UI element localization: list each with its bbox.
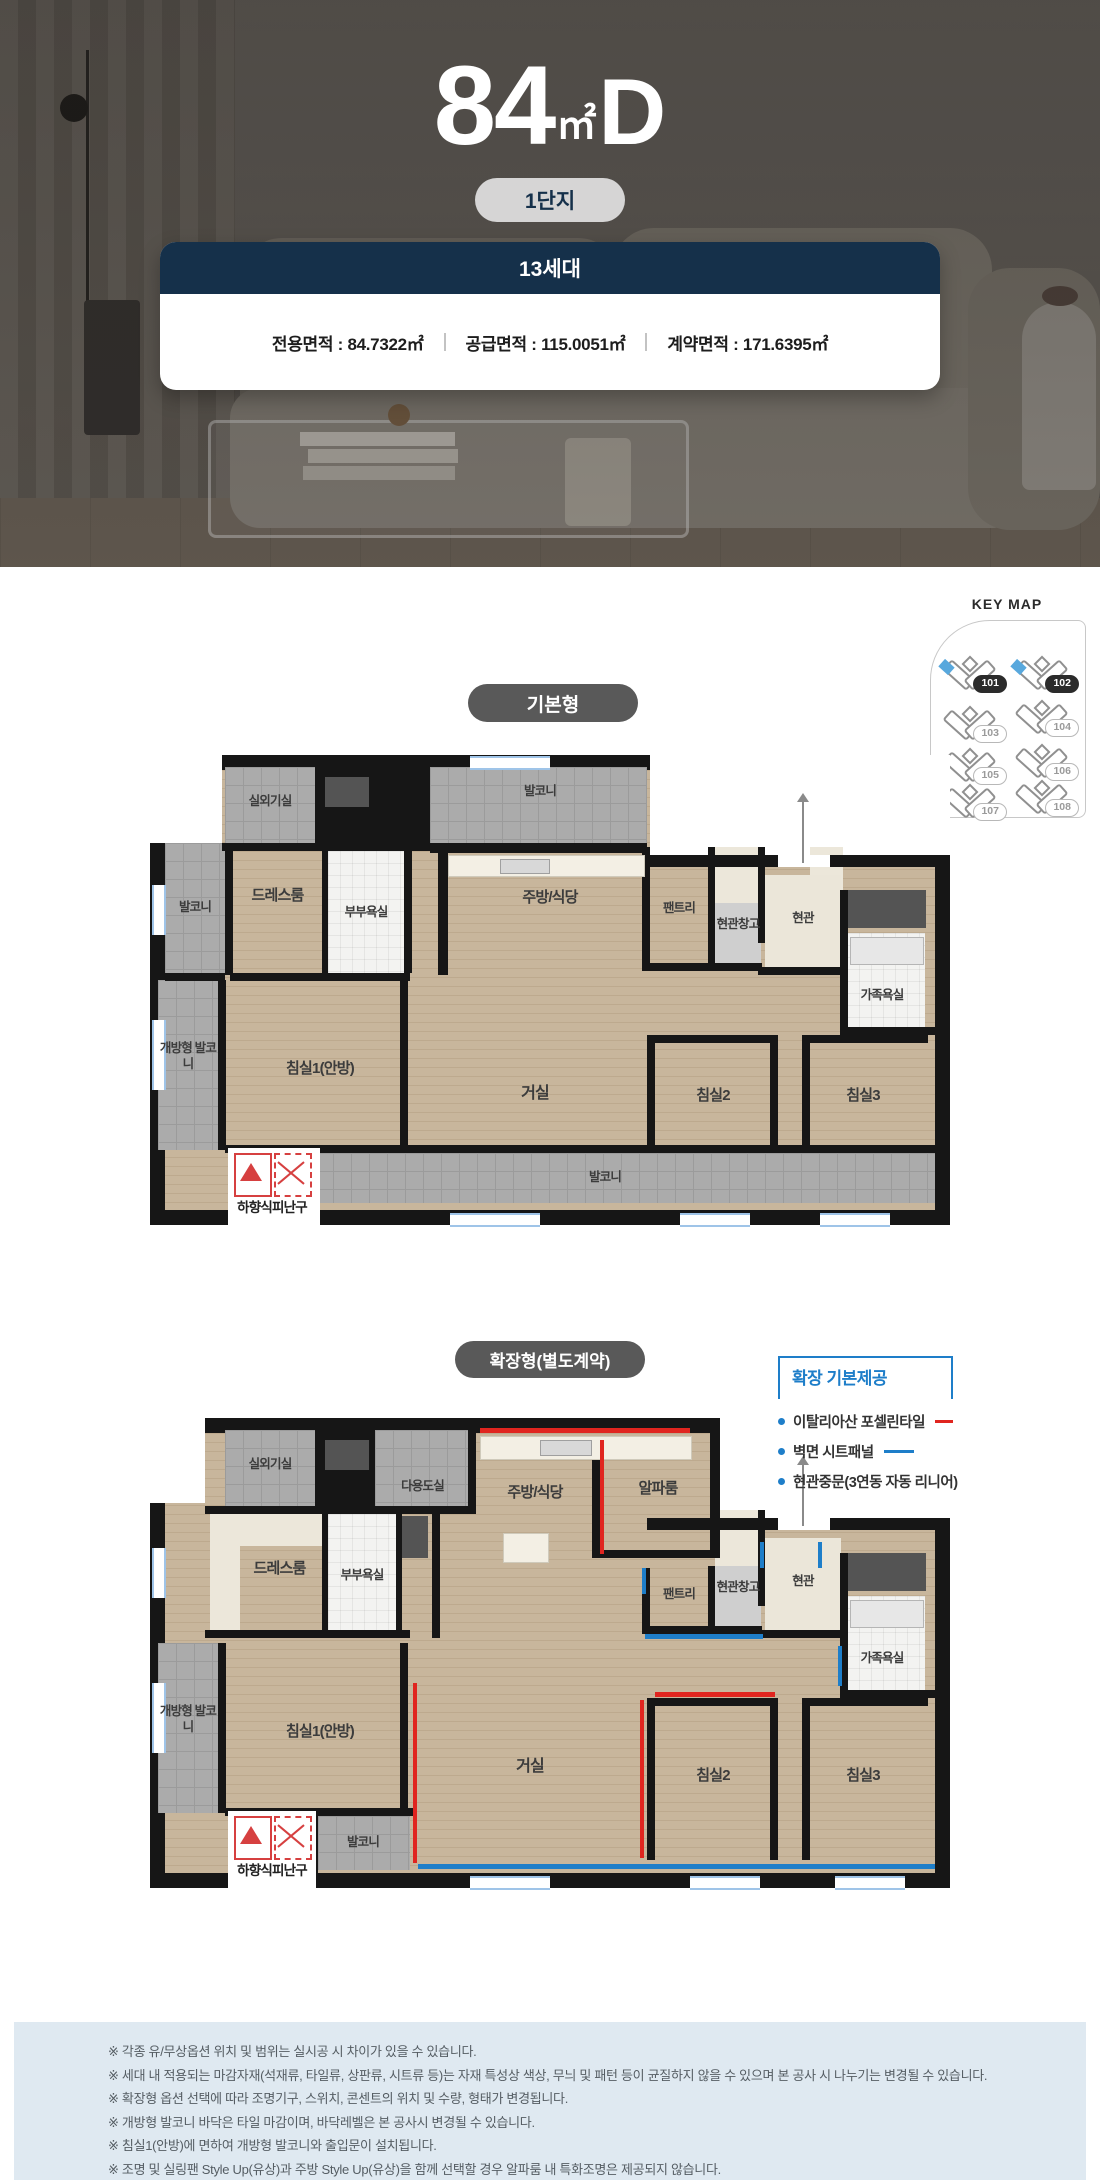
room-label: 주방/식당 <box>495 885 605 911</box>
extension-line-blue <box>418 1864 935 1869</box>
extension-line-blue <box>838 1646 842 1686</box>
duct <box>402 1516 428 1558</box>
extension-line-blue <box>645 1634 763 1639</box>
room-label: 가족욕실 <box>854 977 910 1015</box>
escape-hatch-icon <box>274 1153 312 1197</box>
wall <box>647 1698 655 1860</box>
wall <box>758 1630 842 1638</box>
wall <box>322 851 328 973</box>
wall <box>647 1035 778 1043</box>
room-label: 거실 <box>485 1753 575 1781</box>
complex-badge: 1단지 <box>475 178 625 222</box>
extension-line-red <box>413 1683 417 1863</box>
wall <box>396 1514 402 1632</box>
room-label: 발코니 <box>165 897 225 919</box>
wall <box>642 1626 762 1634</box>
window-marker <box>470 1876 550 1890</box>
keymap: 101 102 103 104 105 106 107 108 <box>930 620 1086 818</box>
room-label: 침실3 <box>818 1083 908 1109</box>
extension-line-red <box>640 1700 644 1858</box>
blue-line-swatch <box>884 1450 914 1453</box>
legend-title: 확장 기본제공 <box>778 1356 953 1399</box>
duct <box>848 890 926 928</box>
keymap-building-103: 103 <box>943 705 995 741</box>
legend-item-label: 이탈리아산 포셀린타일 <box>793 1411 925 1432</box>
note-line: ※ 조명 및 실링팬 Style Up(유상)과 주방 Style Up(유상)… <box>108 2158 1086 2180</box>
keymap-building-107: 107 <box>943 783 995 819</box>
wall <box>400 980 408 1150</box>
room-label: 발코니 <box>570 1167 640 1189</box>
building-number: 103 <box>973 725 1007 743</box>
notes-section: ※ 각종 유/무상옵션 위치 및 범위는 실시공 시 차이가 있을 수 있습니다… <box>14 2022 1086 2180</box>
divider <box>645 333 647 351</box>
exterior-cutout <box>650 755 950 855</box>
entry-arrow <box>802 801 804 863</box>
keymap-building-106: 106 <box>1015 743 1067 779</box>
window-marker <box>470 756 550 770</box>
building-number: 104 <box>1045 719 1079 737</box>
room-label: 주방/식당 <box>480 1480 590 1506</box>
households-header: 13세대 <box>160 242 940 294</box>
building-number: 102 <box>1045 675 1079 693</box>
extension-line-red <box>600 1440 604 1554</box>
escape-hatch-icon <box>274 1816 312 1860</box>
unit-type-sqm: ㎡ <box>556 103 596 147</box>
duct <box>325 777 369 807</box>
room-label: 부부욕실 <box>332 1558 392 1594</box>
extension-line-blue <box>818 1542 822 1568</box>
wall <box>430 843 647 853</box>
keymap-building-105: 105 <box>943 747 995 783</box>
window-marker <box>152 885 166 935</box>
area-exclusive: 전용면적 : 84.7322㎡ <box>272 330 424 355</box>
wall <box>802 1035 810 1147</box>
room-label: 침실1(안방) <box>250 1718 390 1746</box>
escape-hatch-icon <box>234 1816 272 1860</box>
wall <box>758 967 842 975</box>
plan-basic-badge: 기본형 <box>468 684 638 722</box>
wall <box>230 973 410 981</box>
plan-extended-badge: 확장형(별도계약) <box>455 1341 645 1378</box>
wall <box>802 1698 810 1860</box>
bullet-icon <box>778 1418 785 1425</box>
room-label: 현관창고 <box>716 905 760 945</box>
room-label: 개방형 발코니 <box>156 1035 220 1079</box>
wall <box>205 1630 410 1638</box>
exterior-cutout <box>150 755 222 843</box>
room-label: 팬트리 <box>650 1583 708 1607</box>
building-number: 107 <box>973 803 1007 821</box>
room-label: 현관 <box>775 1570 831 1594</box>
wall <box>222 843 442 851</box>
bathtub <box>850 1600 924 1628</box>
entry-arrow-head <box>797 793 809 802</box>
unit-type-letter: D <box>598 59 666 164</box>
keymap-building-108: 108 <box>1015 779 1067 815</box>
exterior-cutout <box>150 1418 205 1503</box>
room-label: 실외기실 <box>225 1454 315 1476</box>
kitchen-island <box>503 1533 549 1563</box>
kitchen-sink <box>500 859 550 874</box>
kitchen-sink <box>540 1440 592 1456</box>
window-marker <box>680 1213 750 1227</box>
area-supply: 공급면적 : 115.0051㎡ <box>466 330 626 355</box>
window-marker <box>450 1213 540 1227</box>
note-line: ※ 개방형 발코니 바닥은 타일 마감이며, 바닥레벨은 본 공사시 변경될 수… <box>108 2111 1086 2135</box>
escape-triangle <box>240 1826 262 1844</box>
room-label: 발코니 <box>328 1832 398 1854</box>
legend-item-label: 벽면 시트패널 <box>793 1441 874 1462</box>
room-label: 하향식피난구 <box>212 1859 332 1883</box>
bathtub <box>850 937 924 965</box>
divider <box>444 333 446 351</box>
wall <box>802 1035 928 1043</box>
duct <box>325 1440 369 1470</box>
room-label: 실외기실 <box>225 791 315 813</box>
extension-line-red <box>655 1692 775 1697</box>
window-marker <box>835 1876 905 1890</box>
room-label: 침실2 <box>668 1083 758 1109</box>
wall <box>404 851 412 973</box>
room-label: 현관창고 <box>716 1568 760 1608</box>
wall <box>225 1145 935 1153</box>
unit-info-card: 13세대 전용면적 : 84.7322㎡ 공급면적 : 115.0051㎡ 계약… <box>160 242 940 390</box>
keymap-title: KEY MAP <box>930 596 1084 612</box>
room-label: 부부욕실 <box>336 895 396 931</box>
note-line: ※ 확장형 옵션 선택에 따라 조명기구, 스위치, 콘센트의 위치 및 수량,… <box>108 2087 1086 2111</box>
room-label: 개방형 발코니 <box>156 1698 220 1742</box>
wall <box>710 1430 720 1558</box>
wall <box>647 1698 778 1706</box>
room-label: 팬트리 <box>650 897 708 921</box>
room-label: 하향식피난구 <box>212 1196 332 1220</box>
room-balcony-top <box>430 767 647 845</box>
note-line: ※ 세대 내 적용되는 마감자재(석재류, 타일류, 상판류, 시트류 등)는 … <box>108 2064 1086 2088</box>
wall <box>770 1035 778 1147</box>
room-label: 드레스룸 <box>232 1556 327 1582</box>
window-marker <box>152 1548 166 1598</box>
duct <box>848 1553 926 1591</box>
legend-item: 이탈리아산 포셀린타일 <box>778 1411 953 1432</box>
keymap-building-104: 104 <box>1015 699 1067 735</box>
building-number: 108 <box>1045 799 1079 817</box>
area-contract: 계약면적 : 171.6395㎡ <box>667 330 828 355</box>
note-line: ※ 각종 유/무상옵션 위치 및 범위는 실시공 시 차이가 있을 수 있습니다… <box>108 2040 1086 2064</box>
bullet-icon <box>778 1478 785 1485</box>
room-label: 발코니 <box>500 781 580 803</box>
room-label: 현관 <box>775 907 831 931</box>
wall <box>225 843 233 975</box>
room-label: 드레스룸 <box>230 883 325 909</box>
extension-line-blue <box>760 1542 764 1568</box>
room-label: 알파룸 <box>608 1476 708 1502</box>
room-label: 침실2 <box>668 1763 758 1789</box>
wall <box>468 1430 476 1514</box>
room-label: 가족욕실 <box>854 1640 910 1678</box>
page: 84㎡D 1단지 13세대 전용면적 : 84.7322㎡ 공급면적 : 115… <box>0 0 1100 2180</box>
wall <box>770 1698 778 1860</box>
escape-triangle <box>240 1163 262 1181</box>
window-marker <box>690 1876 760 1890</box>
wall <box>642 963 762 971</box>
wall <box>165 973 225 981</box>
keymap-building-101: 101 <box>943 655 995 691</box>
unit-type-title: 84㎡D <box>0 50 1100 162</box>
extension-line-red <box>480 1428 690 1433</box>
window-marker <box>820 1213 890 1227</box>
wall <box>400 1643 408 1813</box>
wall <box>432 1514 440 1638</box>
note-line: ※ 침실1(안방)에 면하여 개방형 발코니와 출입문이 설치됩니다. <box>108 2134 1086 2158</box>
entry-door-gap <box>778 1518 830 1530</box>
room-label: 거실 <box>490 1080 580 1108</box>
legend-item: 현관중문(3연동 자동 리니어) <box>778 1471 953 1492</box>
wall <box>840 890 848 1035</box>
bullet-icon <box>778 1448 785 1455</box>
unit-type-number: 84 <box>434 43 555 168</box>
escape-hatch-icon <box>234 1153 272 1197</box>
keymap-building-102: 102 <box>1015 655 1067 691</box>
wall <box>592 1550 718 1558</box>
floorplan-basic: 실외기실 발코니 발코니 드레스룸 부부욕실 주방/식당 팬트리 현관창고 현관… <box>150 755 950 1225</box>
room-label: 침실1(안방) <box>250 1055 390 1083</box>
wall <box>840 1690 935 1698</box>
dress-closet <box>210 1513 325 1546</box>
extension-line-blue <box>642 1568 646 1594</box>
hero-photo: 84㎡D 1단지 13세대 전용면적 : 84.7322㎡ 공급면적 : 115… <box>0 0 1100 567</box>
wall <box>647 1035 655 1147</box>
room-label: 침실3 <box>818 1763 908 1789</box>
legend-items: 이탈리아산 포셀린타일 벽면 시트패널 현관중문(3연동 자동 리니어) <box>778 1411 953 1492</box>
wall <box>708 1566 715 1634</box>
building-number: 101 <box>973 675 1007 693</box>
wall <box>802 1698 928 1706</box>
wall <box>840 1027 935 1035</box>
red-line-swatch <box>935 1420 953 1423</box>
wall <box>438 843 448 975</box>
area-info: 전용면적 : 84.7322㎡ 공급면적 : 115.0051㎡ 계약면적 : … <box>160 294 940 390</box>
wall <box>205 1506 440 1514</box>
entry-door-gap <box>778 855 830 867</box>
room-label: 다용도실 <box>375 1476 470 1498</box>
legend-item: 벽면 시트패널 <box>778 1441 953 1462</box>
legend-item-label: 현관중문(3연동 자동 리니어) <box>793 1471 958 1492</box>
extension-legend: 확장 기본제공 이탈리아산 포셀린타일 벽면 시트패널 현관중문(3연동 자동 … <box>778 1356 953 1501</box>
